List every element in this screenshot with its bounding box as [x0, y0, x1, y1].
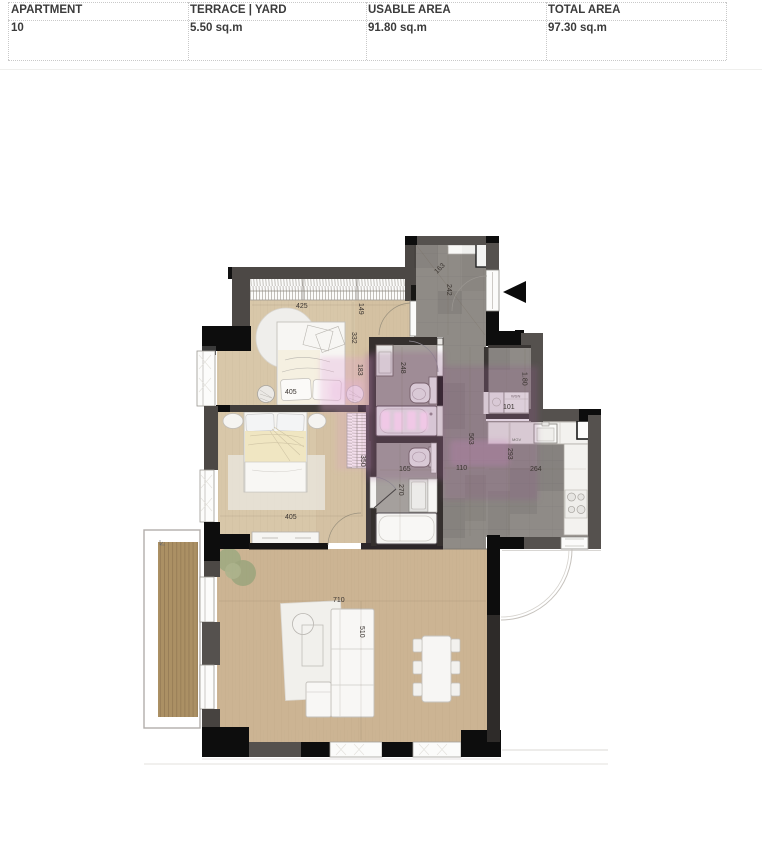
svg-text:242: 242 [445, 284, 452, 296]
svg-text:710: 710 [333, 597, 345, 604]
svg-text:101: 101 [503, 404, 515, 411]
svg-text:149: 149 [357, 303, 364, 315]
svg-text:110: 110 [456, 465, 467, 472]
svg-text:293: 293 [506, 448, 513, 460]
svg-text:264: 264 [530, 466, 542, 473]
svg-text:405: 405 [285, 389, 297, 396]
svg-text:425: 425 [296, 303, 308, 310]
svg-text:183: 183 [356, 364, 363, 376]
svg-text:405: 405 [285, 514, 297, 521]
svg-text:350: 350 [359, 455, 366, 467]
svg-text:165: 165 [399, 466, 411, 473]
svg-text:248: 248 [399, 362, 406, 374]
svg-text:510: 510 [358, 626, 365, 638]
svg-text:270: 270 [397, 484, 404, 496]
svg-text:1.80: 1.80 [521, 372, 528, 386]
svg-text:MGV: MGV [512, 437, 521, 442]
svg-text:563: 563 [467, 433, 474, 445]
svg-text:332: 332 [350, 332, 357, 344]
